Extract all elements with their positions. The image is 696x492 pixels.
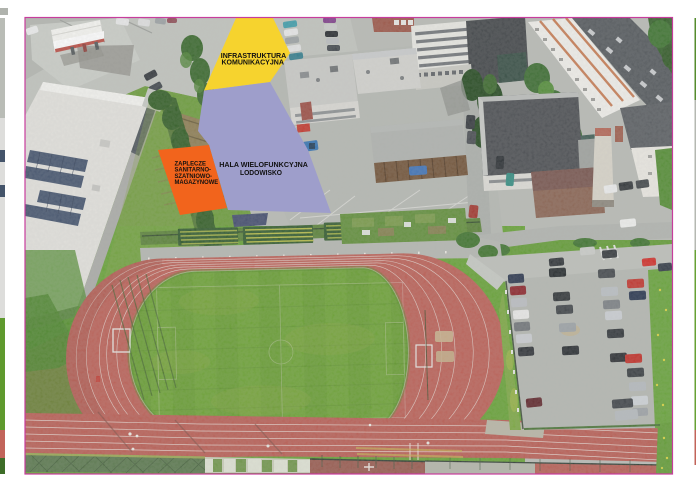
svg-text:LODOWISKO: LODOWISKO bbox=[240, 168, 282, 177]
svg-text:MAGAZYNOWE: MAGAZYNOWE bbox=[175, 179, 219, 186]
svg-text:KOMUNIKACYJNA: KOMUNIKACYJNA bbox=[221, 58, 284, 67]
